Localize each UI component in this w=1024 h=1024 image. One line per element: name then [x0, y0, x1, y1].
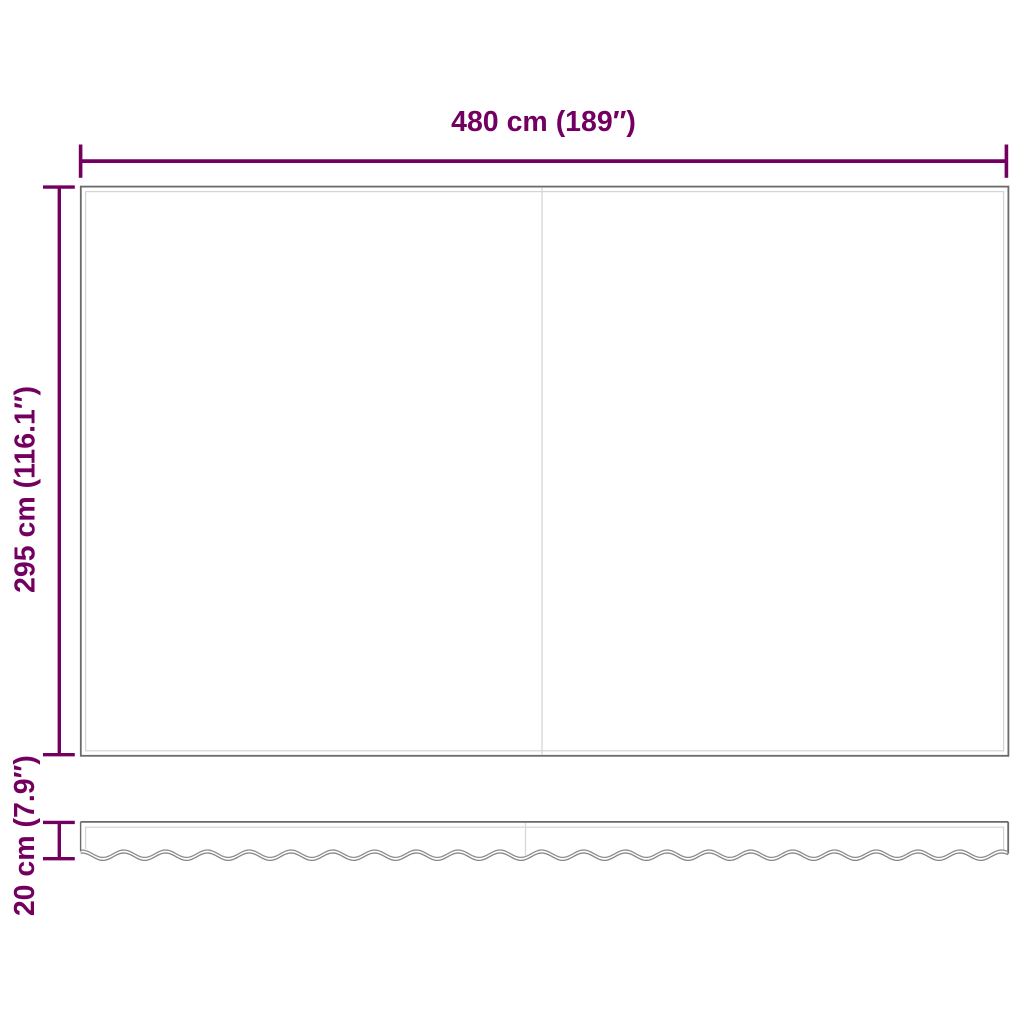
svg-text:480 cm (189″): 480 cm (189″) [451, 106, 636, 138]
svg-text:295 cm (116.1″): 295 cm (116.1″) [10, 386, 42, 593]
svg-text:20 cm (7.9″): 20 cm (7.9″) [9, 755, 41, 916]
